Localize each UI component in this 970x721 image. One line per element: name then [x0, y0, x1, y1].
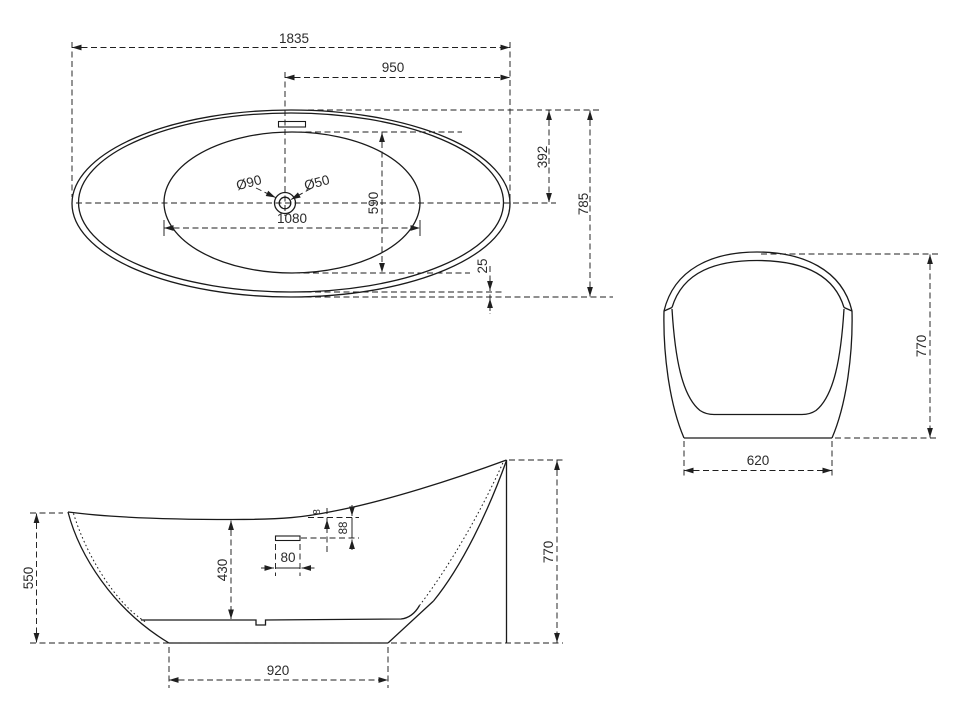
end-view: 770 620 [664, 252, 938, 479]
end-view-dimensions: 770 620 [684, 254, 938, 479]
dim-overall-length: 1835 [279, 31, 309, 46]
top-view-centerlines [76, 72, 556, 216]
dim-rim-thickness: 8 [312, 509, 323, 515]
dim-rim-edge-gap: 25 [475, 258, 490, 273]
dim-overall-width: 785 [576, 193, 591, 216]
dim-drain-outer-dia: Ø90 [235, 172, 264, 193]
dim-inner-depth: 430 [215, 559, 230, 582]
top-view: 1835 950 392 785 25 1080 [72, 31, 613, 314]
side-view: 550 430 8 88 80 770 [21, 460, 564, 688]
dim-drain-to-end: 950 [382, 60, 405, 75]
drawing-sheet: 1835 950 392 785 25 1080 [0, 0, 970, 721]
dim-basin-width: 590 [366, 192, 381, 215]
dim-basin-length: 1080 [277, 211, 307, 226]
dim-overflow-slot-width: 80 [280, 550, 295, 565]
bathtub-technical-drawing: 1835 950 392 785 25 1080 [0, 0, 970, 721]
side-view-dimensions: 550 430 8 88 80 770 [21, 460, 564, 688]
overflow-slot [279, 122, 306, 128]
tub-end-outline [664, 252, 852, 438]
dim-rim-to-center: 392 [535, 146, 550, 169]
dim-end-base-width: 620 [747, 453, 770, 468]
dim-base-length: 920 [267, 663, 290, 678]
dim-end-overall-height: 770 [914, 335, 929, 358]
dim-front-rim-height: 550 [21, 567, 36, 590]
overflow-slot-side [276, 536, 301, 541]
top-view-dimensions: 1835 950 392 785 25 1080 [72, 31, 613, 314]
dim-side-overall-height: 770 [541, 541, 556, 564]
dim-drain-hole-dia: Ø50 [303, 172, 332, 193]
dim-overflow-offset: 88 [338, 522, 350, 535]
